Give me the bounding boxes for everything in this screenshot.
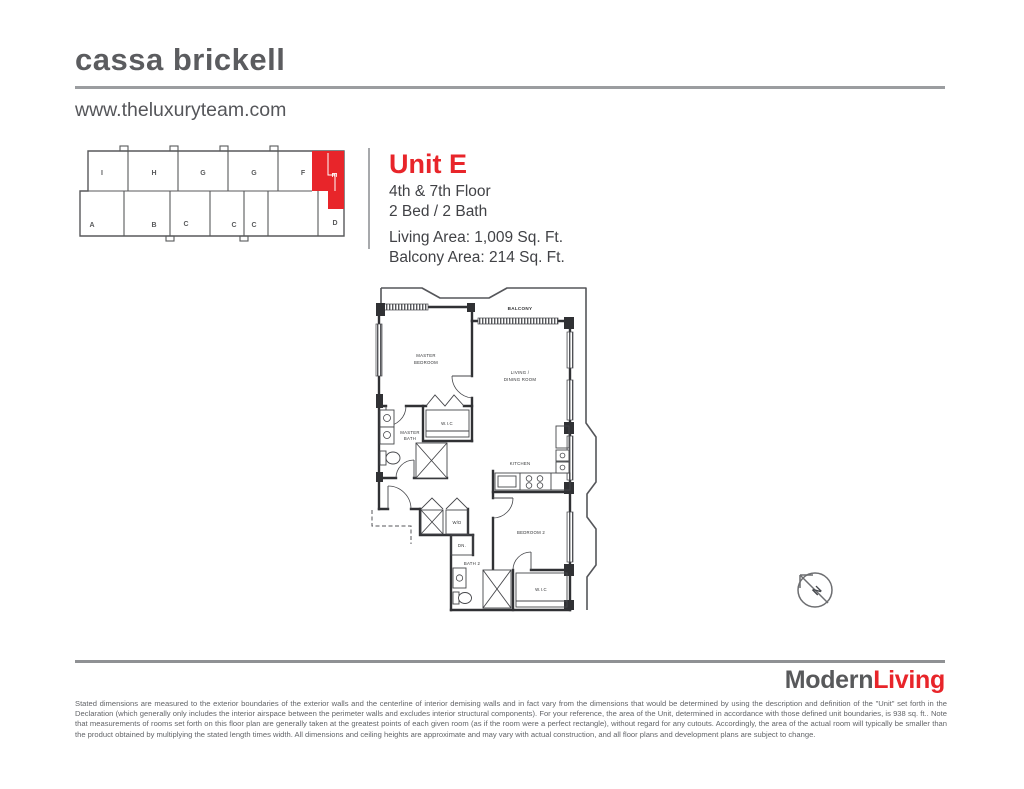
- keyplan-unit-label: F: [301, 170, 306, 177]
- door-arc: [493, 498, 513, 518]
- label-kitchen: KITCHEN: [510, 461, 531, 466]
- label-wic2: W.I.C: [535, 587, 547, 592]
- label-bedroom2: BEDROOM 2: [517, 530, 545, 535]
- unit-living-area: Living Area: 1,009 Sq. Ft.: [389, 228, 565, 248]
- door-arc: [396, 460, 414, 478]
- brand-logo: ModernLiving: [75, 666, 945, 695]
- keyplan-unit-label: G: [200, 170, 206, 177]
- stove-burner: [537, 483, 543, 489]
- logo-living: Living: [873, 666, 945, 694]
- keyplan-unit-label: I: [101, 170, 103, 177]
- svg-text:N: N: [810, 584, 824, 598]
- unit-balcony-area: Balcony Area: 214 Sq. Ft.: [389, 248, 565, 268]
- keyplan-unit-label: G: [251, 170, 257, 177]
- keyplan-svg: I H G G F E A B C C C D: [76, 145, 358, 245]
- svg-text:BATH: BATH: [404, 436, 416, 441]
- label-dn: DN.: [458, 543, 466, 548]
- footer-divider: [75, 660, 945, 663]
- label-master-bath: MASTER: [400, 430, 419, 435]
- unit-info: Unit E 4th & 7th Floor 2 Bed / 2 Bath Li…: [389, 149, 565, 267]
- toilet: [459, 593, 472, 604]
- keyplan-unit-label: C: [231, 222, 236, 229]
- keyplan-unit-label: C: [251, 222, 256, 229]
- window: [567, 512, 573, 562]
- bifold-doors: [421, 498, 468, 509]
- label-wic: W.I.C: [441, 421, 453, 426]
- stove-burner: [537, 476, 543, 482]
- window: [567, 380, 573, 420]
- logo-modern: Modern: [785, 666, 873, 694]
- kitchen-sink: [498, 476, 516, 487]
- window: [376, 324, 382, 376]
- entry-door-arc: [388, 486, 411, 509]
- window: [384, 304, 428, 310]
- svg-text:BEDROOM: BEDROOM: [414, 360, 438, 365]
- label-bath2: BATH 2: [464, 561, 481, 566]
- balcony-outline: [381, 288, 596, 610]
- label-living-dining: LIVING /: [511, 370, 530, 375]
- window: [478, 318, 558, 324]
- north-compass-icon: N: [789, 559, 843, 617]
- flyer-page: cassa brickell www.theluxuryteam.com I H…: [0, 0, 1024, 789]
- page-title: cassa brickell: [75, 42, 285, 78]
- vanity-sink: [453, 568, 466, 588]
- unit-bed-bath: 2 Bed / 2 Bath: [389, 202, 565, 222]
- window: [567, 332, 573, 368]
- keyplan-outline: [80, 151, 344, 236]
- closet-doors: [426, 395, 464, 406]
- label-master-bedroom: MASTER: [416, 353, 435, 358]
- keyplan-unit-label: A: [89, 222, 94, 229]
- toilet: [386, 452, 400, 464]
- vanity-sink: [380, 427, 394, 444]
- label-balcony: BALCONY: [508, 306, 533, 311]
- disclaimer-text: Stated dimensions are measured to the ex…: [75, 699, 947, 740]
- keyplan-info-divider: [368, 148, 370, 249]
- keyplan-unit-label: B: [151, 222, 156, 229]
- label-wd: W/D: [452, 520, 461, 525]
- kitchen-counter: [495, 473, 570, 490]
- keyplan-unit-label: D: [332, 220, 337, 227]
- corridor-dashed-line: [372, 510, 411, 544]
- door-arc: [513, 552, 531, 570]
- floorplan-svg: BALCONY MASTER BEDROOM LIVING / DINING R…: [368, 276, 662, 624]
- unit-floors: 4th & 7th Floor: [389, 182, 565, 202]
- door-arc: [452, 376, 472, 398]
- keyplan-unit-label-e: E: [330, 173, 337, 178]
- keyplan-unit-label: H: [151, 170, 156, 177]
- stove-burner: [526, 483, 532, 489]
- svg-text:DINING ROOM: DINING ROOM: [504, 377, 537, 382]
- header-divider: [75, 86, 945, 89]
- website-url: www.theluxuryteam.com: [75, 99, 286, 122]
- stove-burner: [526, 476, 532, 482]
- keyplan-unit-label: C: [183, 221, 188, 228]
- unit-name: Unit E: [389, 149, 565, 179]
- vanity-sink: [380, 410, 394, 427]
